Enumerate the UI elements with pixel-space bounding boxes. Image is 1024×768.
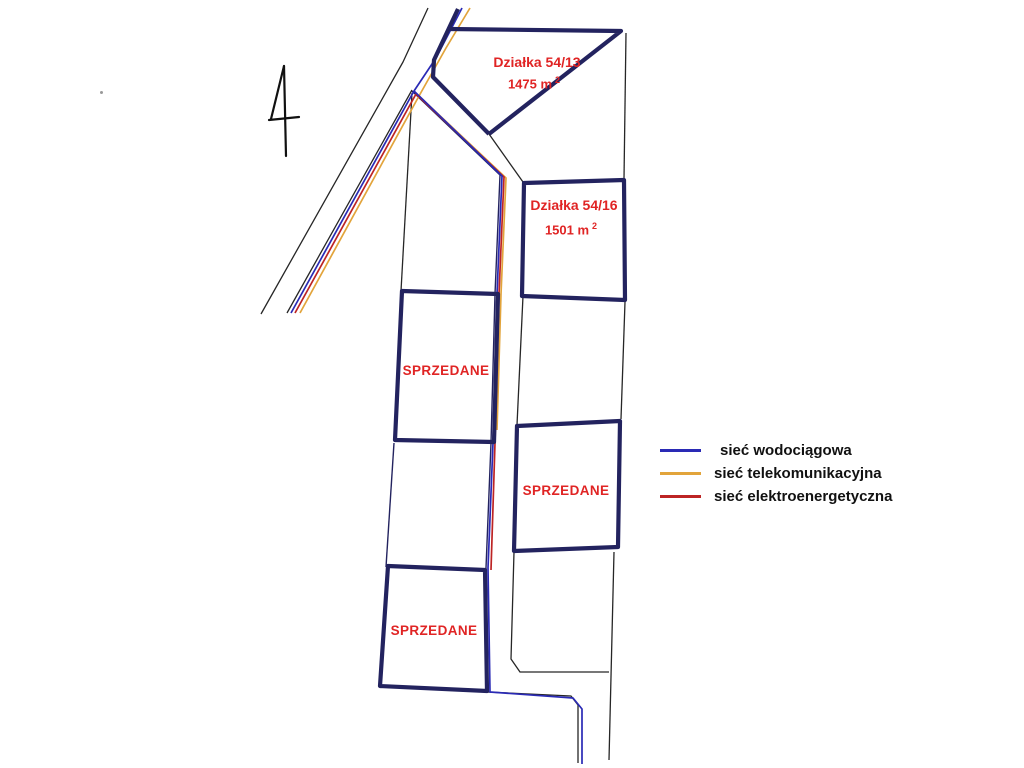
parcel-5416-label: Działka 54/16 xyxy=(530,198,617,212)
boundary-gap-right-right xyxy=(621,302,625,419)
sold-label-3: SPRZEDANE xyxy=(391,624,478,638)
boundary-right-outer xyxy=(609,552,614,760)
north-arrow-diagonal xyxy=(271,66,284,119)
road-right-edge xyxy=(287,90,412,313)
legend-item-water: sieć wodociągowa xyxy=(660,442,892,458)
parcel-5416-area-value: 1501 m xyxy=(545,222,589,237)
north-arrow-icon xyxy=(269,66,299,156)
water-line-swatch xyxy=(660,449,701,452)
parcel-5413-area: 1475 m2 xyxy=(508,76,560,90)
road-left-edge xyxy=(261,8,428,314)
legend-label-telecom: sieć telekomunikacyjna xyxy=(714,465,882,482)
boundary-bottom-drain xyxy=(487,692,578,763)
parcel-5413-area-value: 1475 m xyxy=(508,76,552,91)
boundary-mid-left-parcel xyxy=(386,443,394,567)
boundary-right-upper xyxy=(624,33,626,179)
boundary-5413-5416 xyxy=(489,134,523,182)
plot-map-canvas xyxy=(0,0,1024,768)
boundary-junction-to-plot xyxy=(401,93,412,291)
power-line-swatch xyxy=(660,495,701,498)
north-arrow-crossbar xyxy=(269,117,299,120)
map-artifact-dot xyxy=(100,91,103,94)
parcel-5413-area-sup: 2 xyxy=(555,75,560,85)
power-line-road xyxy=(295,94,416,313)
north-arrow-shaft xyxy=(284,66,286,156)
legend-item-power: sieć elektroenergetyczna xyxy=(660,488,892,504)
legend-item-telecom: sieć telekomunikacyjna xyxy=(660,465,892,481)
telecom-line-swatch xyxy=(660,472,701,475)
sold-label-2: SPRZEDANE xyxy=(523,484,610,498)
legend-label-power: sieć elektroenergetyczna xyxy=(714,488,892,505)
parcel-5413-label: Działka 54/13 xyxy=(493,55,580,69)
legend: sieć wodociągowa sieć telekomunikacyjna … xyxy=(660,442,892,504)
parcel-5416-area: 1501 m2 xyxy=(545,222,597,236)
parcel-5416-area-sup: 2 xyxy=(592,221,597,231)
legend-label-water: sieć wodociągowa xyxy=(720,442,852,459)
sold-label-1: SPRZEDANE xyxy=(403,364,490,378)
plot-map: Działka 54/13 1475 m2 Działka 54/16 1501… xyxy=(0,0,1024,768)
telecom-line-road xyxy=(300,8,470,313)
water-line-branch xyxy=(414,91,582,764)
boundary-below-sold2 xyxy=(511,552,609,672)
boundary-gap-right-left xyxy=(517,296,523,425)
